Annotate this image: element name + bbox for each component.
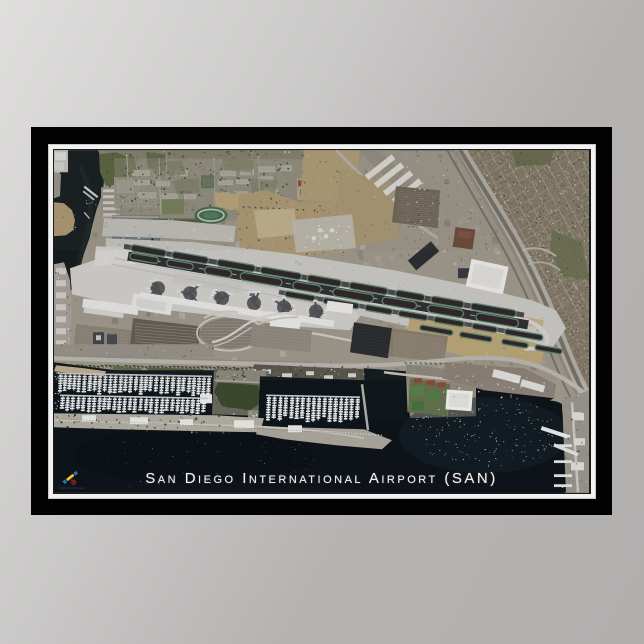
svg-text:© 2011 TerraPrints.com: © 2011 TerraPrints.com [59,487,85,490]
